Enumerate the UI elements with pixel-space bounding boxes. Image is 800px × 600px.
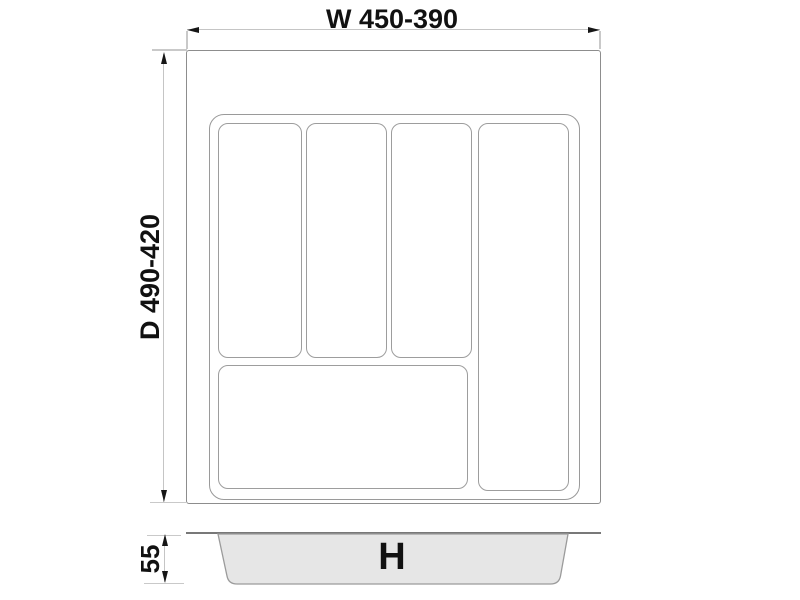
width-dimension-label: W 450-390 xyxy=(292,4,492,35)
compartment-3 xyxy=(391,123,472,358)
dimension-diagram: W 450-390 D 490-420 H 55 xyxy=(0,0,800,600)
arrow-left-icon xyxy=(187,27,199,33)
height-dimension-label: 55 xyxy=(137,524,163,594)
compartment-bottom-wide xyxy=(218,365,468,489)
compartment-2 xyxy=(306,123,387,358)
arrow-right-icon xyxy=(588,27,600,33)
depth-dimension-label: D 490-420 xyxy=(135,167,165,387)
arrow-up-icon xyxy=(161,52,167,64)
height-symbol-label: H xyxy=(292,536,492,579)
depth-extension-line-top xyxy=(152,49,187,50)
compartment-1 xyxy=(218,123,302,358)
width-extension-line-left xyxy=(186,31,187,49)
compartment-right-tall xyxy=(478,123,569,491)
width-extension-line-right xyxy=(599,31,600,49)
arrow-down-icon xyxy=(161,490,167,502)
depth-extension-line-bottom xyxy=(150,502,187,503)
